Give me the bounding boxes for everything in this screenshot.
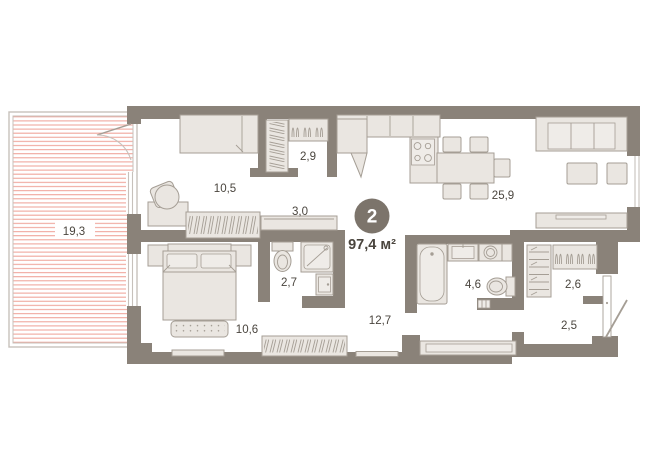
wall-segment bbox=[583, 296, 604, 304]
built-in-closet bbox=[420, 341, 516, 355]
rooms-count: 2 bbox=[367, 207, 378, 228]
wall-segment bbox=[510, 230, 640, 242]
room-105-furniture bbox=[148, 115, 260, 238]
hall-console bbox=[261, 216, 337, 230]
floor-drain bbox=[478, 300, 490, 308]
sink-counter bbox=[448, 244, 478, 261]
tv-console bbox=[536, 213, 627, 228]
coffee-table bbox=[567, 163, 597, 184]
hanger-rod bbox=[553, 245, 597, 269]
sink bbox=[316, 274, 333, 295]
wall-segment bbox=[510, 344, 618, 357]
area-label-shower-room: 2,7 bbox=[281, 277, 297, 289]
wall-segment bbox=[333, 230, 345, 302]
hanger-rod bbox=[289, 119, 328, 141]
wardrobe bbox=[266, 120, 288, 172]
tv-stand bbox=[172, 350, 224, 356]
dining-chair bbox=[443, 184, 461, 199]
sofa bbox=[536, 117, 627, 151]
wall-segment bbox=[258, 242, 270, 302]
kitchen-furniture bbox=[337, 115, 510, 199]
floor-plan-drawing: 19,3 10,5 2,9 3,0 25,9 2,7 4,6 2,6 2,5 1… bbox=[0, 0, 654, 470]
dining-table bbox=[437, 153, 494, 183]
bed-bench bbox=[171, 321, 228, 337]
toilet bbox=[487, 277, 515, 296]
area-label-hall: 3,0 bbox=[292, 206, 308, 218]
desk-chair bbox=[155, 185, 179, 209]
fridge-door-open bbox=[351, 153, 367, 177]
entry-wardrobe-furniture bbox=[527, 245, 597, 297]
bedroom-furniture bbox=[148, 244, 251, 356]
area-label-wardrobe-top: 2,9 bbox=[300, 151, 316, 163]
pillow bbox=[201, 254, 231, 268]
window-bedroom bbox=[126, 254, 135, 306]
dining-chair bbox=[443, 137, 461, 152]
floor-plan: 19,3 10,5 2,9 3,0 25,9 2,7 4,6 2,6 2,5 1… bbox=[0, 0, 654, 470]
dining-chair bbox=[470, 137, 488, 152]
bathroom-cabinet bbox=[502, 244, 512, 261]
single-bed bbox=[180, 115, 258, 153]
living-furniture bbox=[536, 117, 627, 228]
area-label-kitchen-living: 25,9 bbox=[492, 190, 514, 202]
total-area: 97,4 м² bbox=[348, 237, 396, 253]
wardrobe bbox=[186, 212, 260, 238]
window-room-105 bbox=[126, 172, 135, 214]
fridge bbox=[337, 119, 367, 153]
wall-segment bbox=[402, 335, 420, 364]
entrance-door bbox=[603, 276, 627, 337]
toilet bbox=[272, 242, 293, 272]
dining-chair bbox=[470, 184, 488, 199]
closet-29-furniture bbox=[266, 119, 328, 172]
wall-segment bbox=[405, 235, 517, 244]
wall-segment bbox=[596, 242, 618, 274]
corridor-furniture bbox=[262, 336, 516, 357]
area-label-terrace: 19,3 bbox=[63, 226, 85, 238]
shower bbox=[301, 242, 333, 272]
stove bbox=[412, 139, 435, 165]
wall-segment bbox=[302, 296, 345, 308]
wall-segment bbox=[627, 119, 640, 156]
area-label-bedroom-main: 10,6 bbox=[236, 324, 258, 336]
apartment-badge: 2 97,4 м² bbox=[348, 199, 396, 254]
area-label-corridor: 12,7 bbox=[369, 315, 391, 327]
area-label-entry-hall: 2,5 bbox=[561, 320, 577, 332]
wall-segment bbox=[127, 106, 141, 124]
area-label-wardrobe-entry: 2,6 bbox=[565, 279, 581, 291]
shoe-shelf bbox=[356, 352, 398, 357]
hall-wardrobe bbox=[262, 336, 347, 356]
washing-machine bbox=[479, 244, 502, 261]
bathtub bbox=[417, 244, 447, 304]
dining-chair bbox=[494, 159, 510, 177]
area-label-bedroom-small: 10,5 bbox=[214, 183, 236, 195]
double-bed bbox=[163, 251, 236, 320]
area-label-bathroom: 4,6 bbox=[465, 279, 481, 291]
pillow bbox=[167, 254, 197, 268]
wall-segment bbox=[405, 235, 417, 313]
window-living bbox=[633, 156, 642, 207]
pouf bbox=[607, 163, 627, 184]
shelf-unit bbox=[527, 245, 551, 297]
